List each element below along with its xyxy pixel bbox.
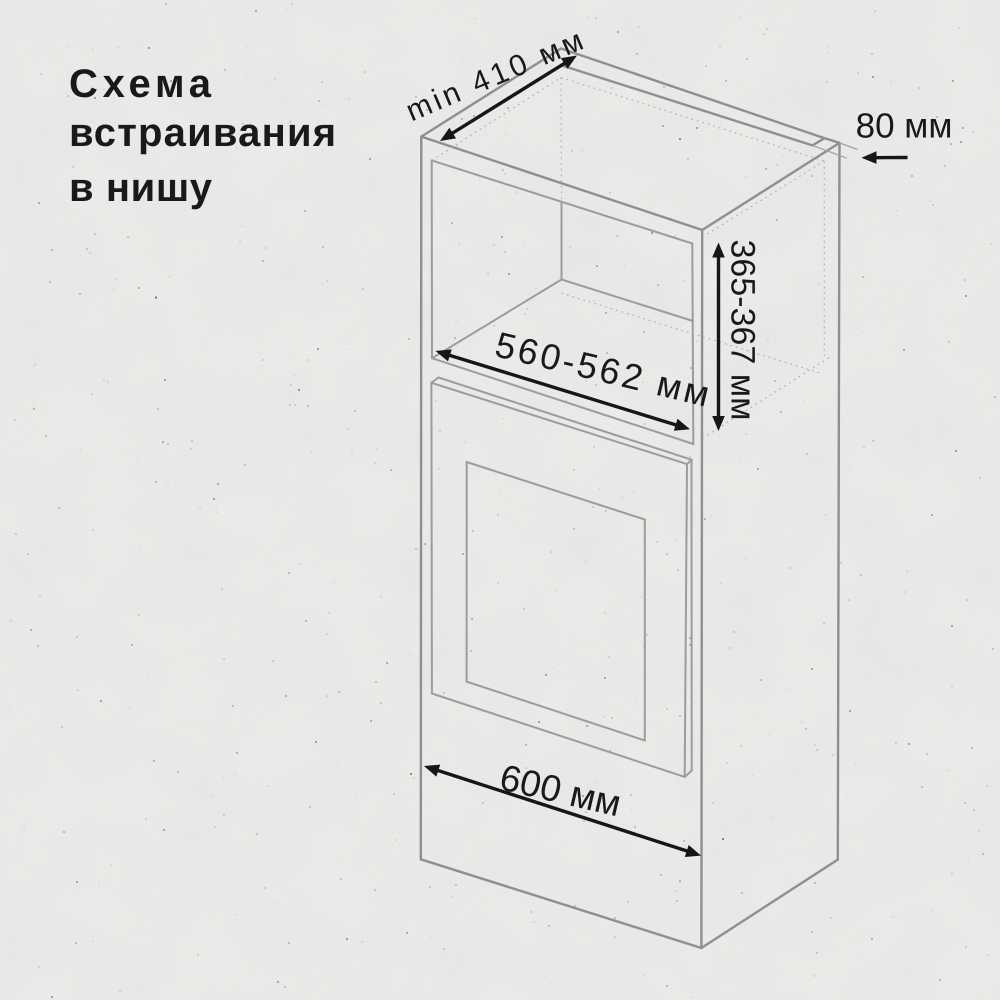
svg-text:365-367 мм: 365-367 мм — [724, 240, 762, 421]
svg-text:Схема: Схема — [69, 62, 216, 106]
svg-text:80 мм: 80 мм — [856, 107, 953, 146]
svg-text:в нишу: в нишу — [69, 166, 213, 210]
svg-text:встраивания: встраивания — [69, 111, 337, 155]
